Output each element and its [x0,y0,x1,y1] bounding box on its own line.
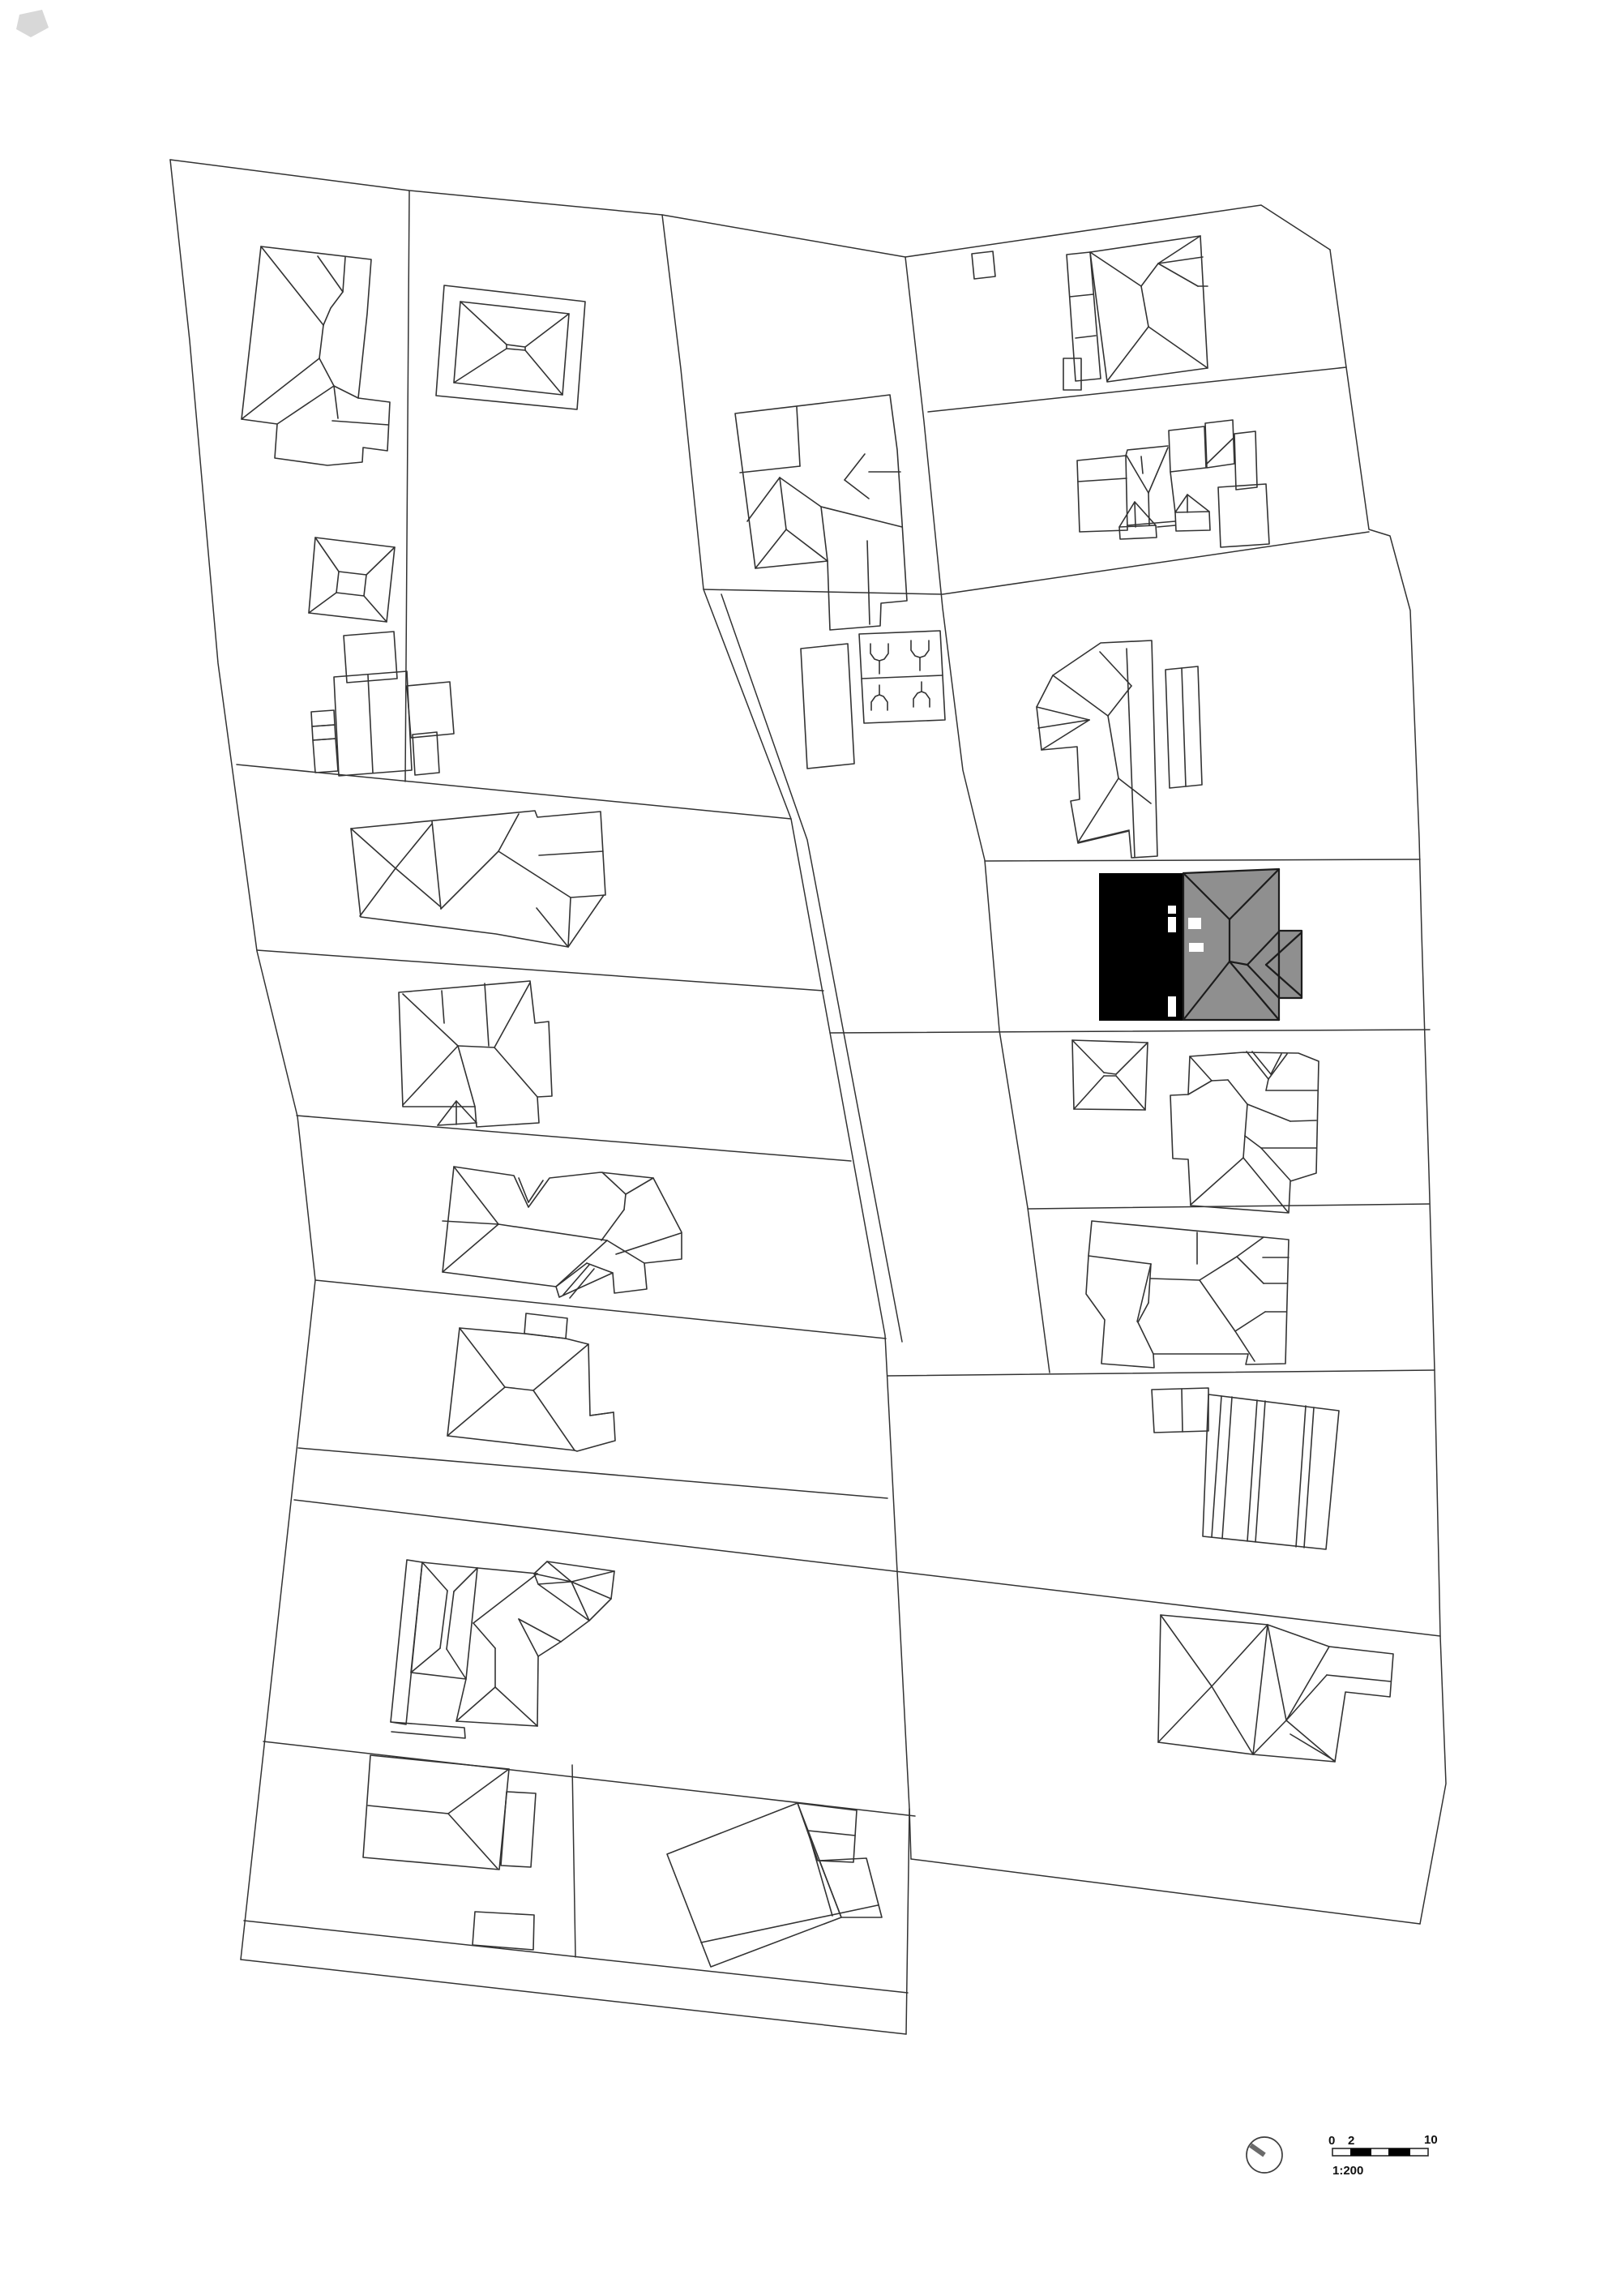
svg-text:2: 2 [1348,2134,1354,2148]
svg-text:0: 0 [1328,2134,1335,2148]
svg-text:10: 10 [1424,2133,1438,2147]
svg-text:1:200: 1:200 [1332,2164,1363,2178]
